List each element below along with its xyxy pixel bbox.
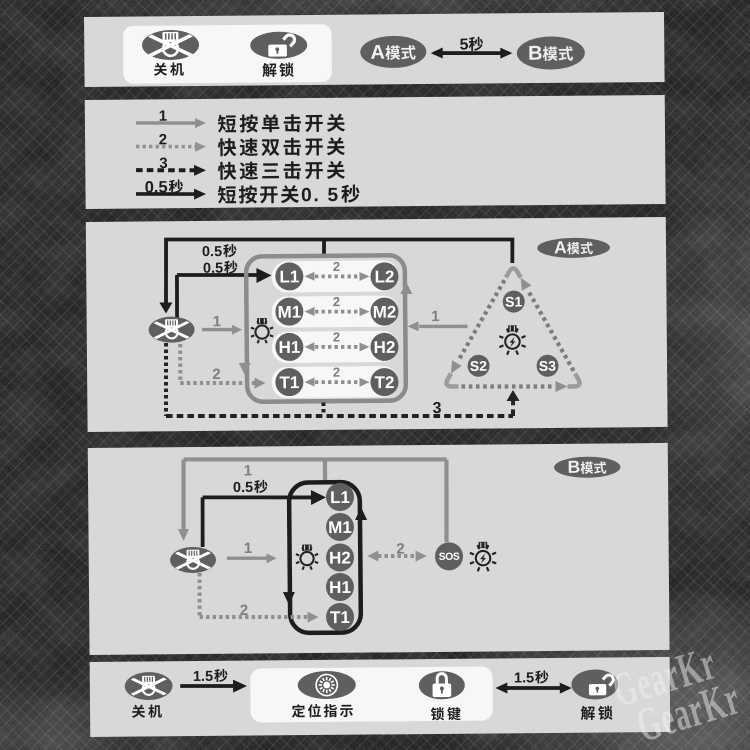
svg-text:T1: T1 [330,608,350,627]
svg-text:3: 3 [432,400,441,417]
svg-text:M1: M1 [277,303,301,322]
svg-text:1.5: 1.5 [193,669,213,685]
svg-text:L1: L1 [279,267,299,286]
svg-text:H1: H1 [278,338,300,357]
svg-text:1: 1 [244,462,252,479]
svg-text:1: 1 [244,540,252,557]
svg-text:2: 2 [396,541,404,558]
svg-text:S1: S1 [505,293,522,309]
svg-text:H1: H1 [329,578,351,597]
svg-text:0. 5: 0. 5 [301,185,340,206]
svg-text:B: B [568,457,581,477]
svg-text:0.5: 0.5 [145,178,168,196]
svg-text:A: A [370,42,385,64]
svg-text:1: 1 [213,313,221,330]
svg-text:2: 2 [159,131,167,148]
svg-text:H2: H2 [374,338,396,357]
svg-text:2: 2 [240,602,248,619]
svg-text:L2: L2 [374,267,394,286]
svg-text:A: A [554,237,567,257]
svg-text:0.5: 0.5 [233,480,253,496]
svg-text:0.5: 0.5 [203,261,223,277]
svg-text:T1: T1 [279,373,299,392]
svg-text:5: 5 [459,37,468,54]
svg-text:H2: H2 [329,548,351,567]
svg-text:1: 1 [431,308,439,325]
svg-text:M2: M2 [373,302,397,321]
svg-text:S2: S2 [470,358,487,374]
svg-text:SOS: SOS [439,552,460,563]
svg-text:M1: M1 [328,518,352,537]
svg-text:L1: L1 [330,488,350,507]
svg-text:2: 2 [212,366,220,383]
svg-text:1.5: 1.5 [514,670,534,686]
svg-text:B: B [528,43,543,65]
svg-text:1: 1 [159,108,167,125]
svg-text:2: 2 [333,329,340,344]
svg-text:2: 2 [333,294,340,309]
svg-text:3: 3 [159,155,167,172]
svg-text:2: 2 [333,365,340,380]
svg-text:S3: S3 [539,358,556,374]
svg-text:T2: T2 [374,373,394,392]
svg-text:2: 2 [333,259,340,274]
svg-text:0.5: 0.5 [202,244,222,260]
